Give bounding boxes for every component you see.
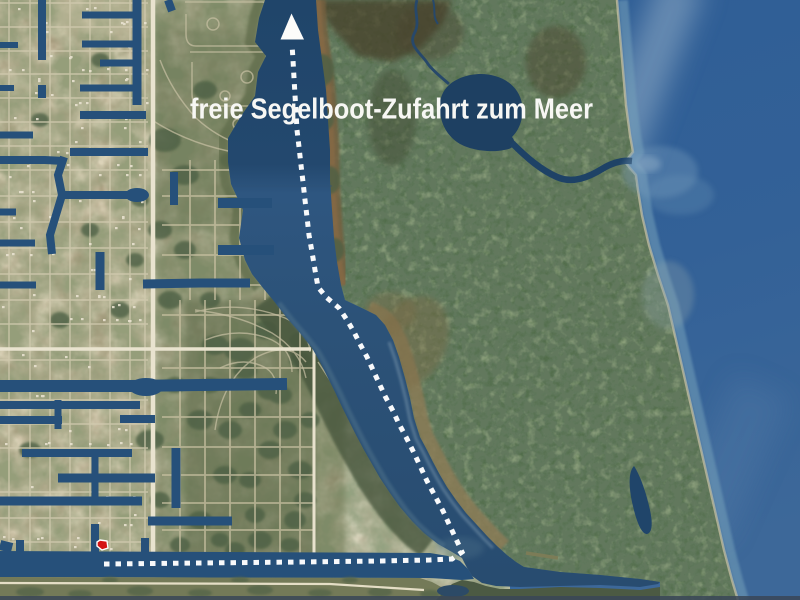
svg-text:freie Segelboot-Zufahrt zum Me: freie Segelboot-Zufahrt zum Meer bbox=[190, 94, 593, 126]
